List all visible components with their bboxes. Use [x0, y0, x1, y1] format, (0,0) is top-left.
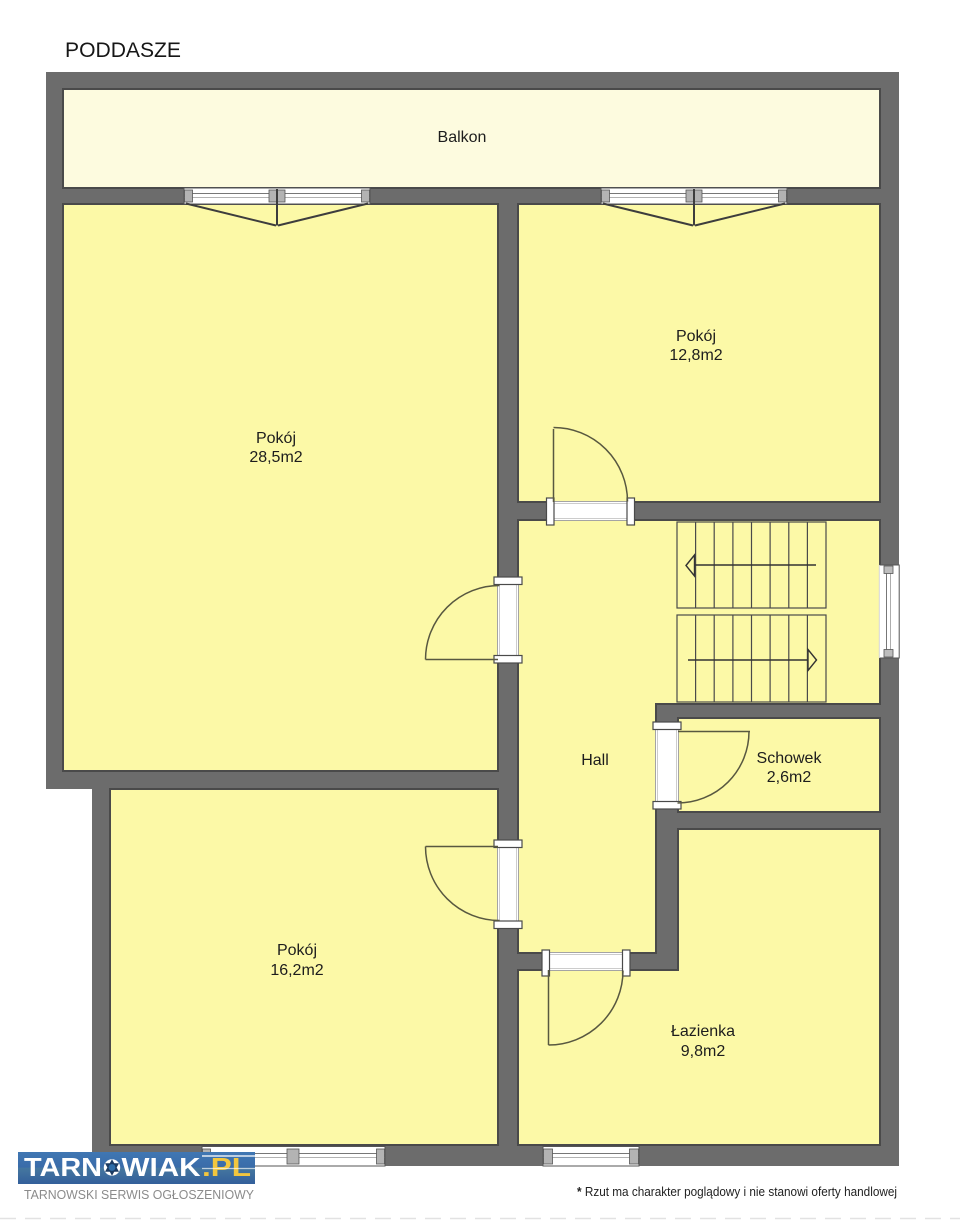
svg-text:28,5m2: 28,5m2: [249, 449, 302, 466]
svg-text:16,2m2: 16,2m2: [270, 962, 323, 979]
svg-text:9,8m2: 9,8m2: [681, 1043, 726, 1060]
svg-text:TARN: TARN: [24, 1152, 102, 1182]
svg-text:2,6m2: 2,6m2: [767, 769, 812, 786]
svg-text:Hall: Hall: [581, 752, 609, 769]
svg-text:Pokój: Pokój: [277, 942, 317, 959]
svg-text:* Rzut ma charakter poglądowy: * Rzut ma charakter poglądowy i nie stan…: [577, 1185, 897, 1199]
svg-text:WIAK: WIAK: [122, 1152, 201, 1182]
svg-text:Pokój: Pokój: [256, 430, 296, 447]
svg-text:Balkon: Balkon: [438, 129, 487, 146]
svg-text:TARNOWSKI SERWIS OGŁOSZENIOWY: TARNOWSKI SERWIS OGŁOSZENIOWY: [24, 1188, 255, 1202]
svg-text:PODDASZE: PODDASZE: [65, 38, 181, 62]
svg-text:Pokój: Pokój: [676, 328, 716, 345]
svg-text:Łazienka: Łazienka: [671, 1023, 735, 1040]
svg-text:Schowek: Schowek: [757, 750, 823, 767]
svg-text:12,8m2: 12,8m2: [669, 347, 722, 364]
